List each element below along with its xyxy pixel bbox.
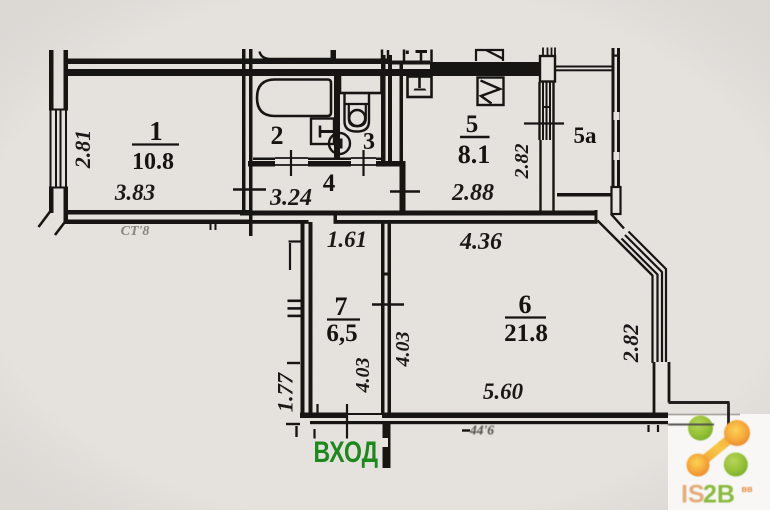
svg-text:4: 4 (323, 170, 336, 197)
svg-text:5a: 5a (574, 123, 598, 148)
svg-text:5.60: 5.60 (483, 379, 524, 404)
svg-text:4.03: 4.03 (352, 358, 374, 394)
svg-text:1: 1 (149, 116, 163, 146)
svg-text:2B: 2B (703, 481, 735, 509)
svg-text:6: 6 (519, 290, 532, 319)
svg-text:3: 3 (363, 129, 375, 155)
svg-text:СТ'8: СТ'8 (121, 224, 150, 239)
svg-text:1.61: 1.61 (327, 227, 367, 252)
svg-text:2.88: 2.88 (451, 180, 494, 206)
svg-text:10.8: 10.8 (132, 149, 174, 175)
svg-text:44'6: 44'6 (469, 423, 494, 438)
svg-text:2.82: 2.82 (511, 144, 533, 180)
svg-text:3.83: 3.83 (114, 180, 155, 205)
svg-text:8.1: 8.1 (458, 140, 491, 169)
svg-text:5: 5 (466, 111, 479, 138)
svg-text:2: 2 (271, 121, 284, 150)
svg-text:2.82: 2.82 (618, 324, 643, 364)
svg-text:1.77: 1.77 (273, 372, 298, 412)
svg-text:7: 7 (335, 292, 348, 321)
svg-text:4.36: 4.36 (459, 229, 502, 255)
svg-text:вв: вв (742, 484, 754, 494)
svg-text:21.8: 21.8 (504, 320, 548, 347)
svg-text:3.24: 3.24 (269, 185, 312, 211)
svg-text:6,5: 6,5 (326, 320, 357, 347)
svg-text:2.81: 2.81 (70, 130, 95, 170)
svg-text:IS: IS (681, 481, 705, 509)
svg-text:4.03: 4.03 (392, 332, 414, 368)
svg-text:ВХОД: ВХОД (314, 436, 379, 469)
